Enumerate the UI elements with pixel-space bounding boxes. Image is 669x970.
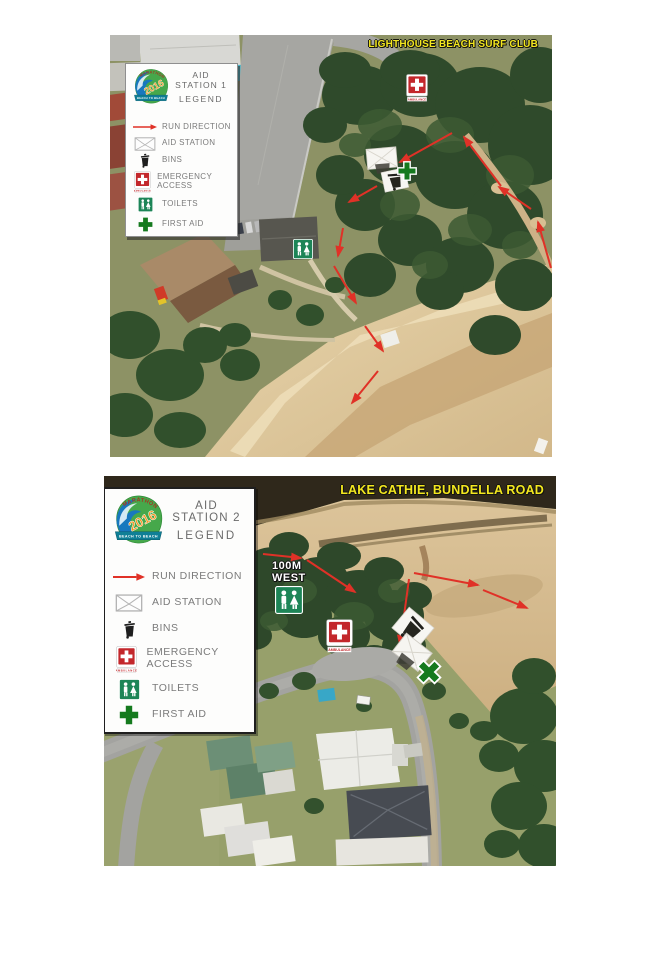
legend-item-emergency-access: AMBULANCE EMERGENCY ACCESS <box>132 169 232 195</box>
legend-item-label: TOILETS <box>152 683 199 695</box>
legend-item-label: BINS <box>152 623 179 635</box>
legend-header: MARATHON 2016 BEACH TO BEACH AID STATION… <box>132 68 232 106</box>
legend-item-bins: BINS <box>112 616 248 642</box>
run-direction-arrow <box>483 590 527 608</box>
legend-item-label: RUN DIRECTION <box>152 571 242 583</box>
legend-item-label: TOILETS <box>162 200 198 209</box>
toilets-icon <box>112 679 146 700</box>
legend-header: MARATHON 2016 BEACH TO BEACH AID STATION… <box>112 494 248 547</box>
emergency-access-icon: AMBULANCE <box>112 646 141 673</box>
legend-item-label: AID STATION <box>152 597 222 609</box>
distance-label-line1: 100M <box>272 561 306 573</box>
legend-item-label: FIRST AID <box>152 709 206 721</box>
legend-subtitle: LEGEND <box>170 94 232 104</box>
ambulance-label: AMBULANCE <box>134 190 151 193</box>
distance-label-line2: WEST <box>272 573 306 585</box>
run-direction-arrow-icon <box>132 123 158 131</box>
legend-item-run-direction: RUN DIRECTION <box>112 564 248 590</box>
legend-subtitle: LEGEND <box>165 530 248 542</box>
marathon-2016-logo: MARATHON 2016 BEACH TO BEACH <box>112 494 165 547</box>
aid-station-icon <box>112 594 146 612</box>
legend-item-run-direction: RUN DIRECTION <box>132 119 232 135</box>
run-direction-arrow <box>400 133 452 162</box>
legend-item-label: EMERGENCY ACCESS <box>157 173 232 191</box>
legend-item-label: EMERGENCY ACCESS <box>147 647 248 670</box>
emergency-access-icon: AMBULANCE <box>132 171 153 193</box>
legend-item-aid-station: AID STATION <box>112 590 248 616</box>
logo-banner-text: BEACH TO BEACH <box>119 534 158 538</box>
run-direction-arrow <box>352 371 378 403</box>
legend-item-toilets: TOILETS <box>112 676 248 702</box>
toilets-icon <box>132 197 158 212</box>
first-aid-icon <box>112 705 146 725</box>
distance-label-100m-west: 100M WEST <box>272 561 306 584</box>
ambulance-label: AMBULANCE <box>116 668 137 672</box>
run-direction-arrow <box>464 137 501 186</box>
run-direction-arrow <box>400 579 409 645</box>
legend-item-label: FIRST AID <box>162 220 204 229</box>
map-panel-aid-station-2: AMBULANCE LAKE CATHIE, BUNDELLA ROAD 100… <box>104 476 556 866</box>
run-direction-arrow <box>349 186 377 202</box>
run-direction-arrow <box>338 228 343 256</box>
legend-aid-station-1: MARATHON 2016 BEACH TO BEACH AID STATION… <box>125 63 238 237</box>
aid-station-icon <box>132 137 158 151</box>
run-direction-arrow-icon <box>112 572 146 582</box>
run-direction-arrow <box>538 222 551 268</box>
legend-item-first-aid: FIRST AID <box>132 214 232 234</box>
run-direction-arrow <box>263 554 301 558</box>
run-direction-arrow <box>307 560 355 592</box>
first-aid-icon <box>132 217 158 232</box>
legend-item-emergency-access: AMBULANCE EMERGENCY ACCESS <box>112 642 248 676</box>
marathon-2016-logo: MARATHON 2016 BEACH TO BEACH <box>132 68 170 106</box>
logo-banner-text: BEACH TO BEACH <box>137 96 165 100</box>
legend-item-aid-station: AID STATION <box>132 135 232 152</box>
legend-item-bins: BINS <box>132 152 232 169</box>
legend-title: AID STATION 1 <box>170 70 232 90</box>
run-direction-arrow <box>334 266 356 303</box>
run-direction-arrow <box>365 326 383 351</box>
run-direction-arrow <box>499 187 531 209</box>
legend-item-label: RUN DIRECTION <box>162 123 231 132</box>
legend-item-label: AID STATION <box>162 139 215 148</box>
bins-icon <box>132 153 158 168</box>
legend-item-label: BINS <box>162 156 182 165</box>
legend-item-first-aid: FIRST AID <box>112 702 248 728</box>
bins-icon <box>112 620 146 639</box>
legend-item-toilets: TOILETS <box>132 195 232 214</box>
run-direction-arrow <box>414 573 478 585</box>
legend-aid-station-2: MARATHON 2016 BEACH TO BEACH AID STATION… <box>104 487 256 734</box>
map-panel-aid-station-1: AMBULANCE LIGHTHOUSE BEACH SURF CLUB <box>110 35 552 457</box>
legend-title: AID STATION 2 <box>165 500 248 524</box>
